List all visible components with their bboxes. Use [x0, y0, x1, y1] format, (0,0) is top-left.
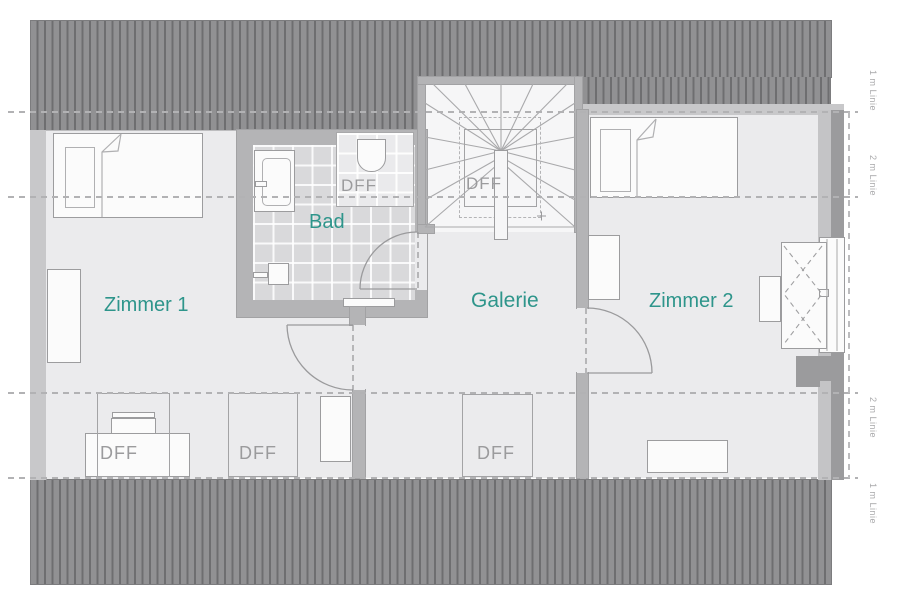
guide-line-1m-top: [8, 111, 858, 113]
dff-label-zimmer1-right: DFF: [239, 443, 277, 464]
window-frame-lines: [827, 239, 837, 351]
room-label-bad: Bad: [309, 211, 345, 234]
window-opening-symbol: [784, 246, 822, 344]
guide-label-2m-bottom: 2 m Linie: [868, 397, 878, 438]
guide-line-2m-top: [8, 196, 858, 198]
guide-label-1m-bottom: 1 m Linie: [868, 483, 878, 524]
chimney-block: [796, 356, 844, 387]
guide-label-1m-top: 1 m Linie: [868, 70, 878, 111]
dff-label-zimmer1-left: DFF: [100, 443, 138, 464]
room-label-galerie: Galerie: [471, 289, 539, 313]
bathroom-door: [360, 232, 418, 289]
roof-window-zimmer1-left: [97, 393, 170, 477]
guide-line-right-vertical: [848, 112, 850, 478]
bed-zimmer1-blanket-fold: [102, 134, 121, 217]
dff-label-stairs: DFF: [466, 174, 502, 194]
zimmer1-door: [287, 325, 353, 390]
guide-line-1m-bottom: [8, 477, 858, 479]
guide-line-2m-bottom: [8, 392, 858, 394]
dff-label-bad: DFF: [341, 176, 377, 196]
dff-label-galerie: DFF: [477, 443, 515, 464]
roof-window-zimmer1-right: [228, 393, 298, 477]
floor-plan: Zimmer 1 Bad Galerie Zimmer 2 DFF DFF DF…: [0, 0, 900, 597]
zimmer2-door: [586, 308, 652, 373]
roof-window-galerie: [462, 394, 533, 477]
stair-newel-post: [494, 150, 508, 240]
room-label-zimmer1: Zimmer 1: [104, 294, 188, 317]
room-label-zimmer2: Zimmer 2: [649, 290, 733, 313]
guide-label-2m-top: 2 m Linie: [868, 155, 878, 196]
bed-zimmer2-blanket-fold: [637, 119, 656, 197]
